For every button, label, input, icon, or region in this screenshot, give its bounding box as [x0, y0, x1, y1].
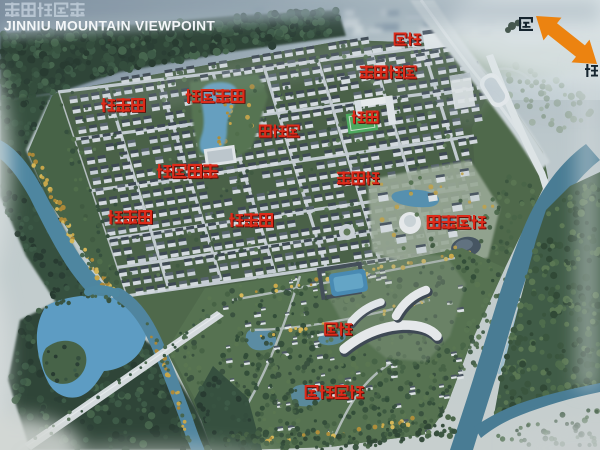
svg-text:JINNIU MOUNTAIN VIEWPOINT: JINNIU MOUNTAIN VIEWPOINT [4, 19, 215, 34]
